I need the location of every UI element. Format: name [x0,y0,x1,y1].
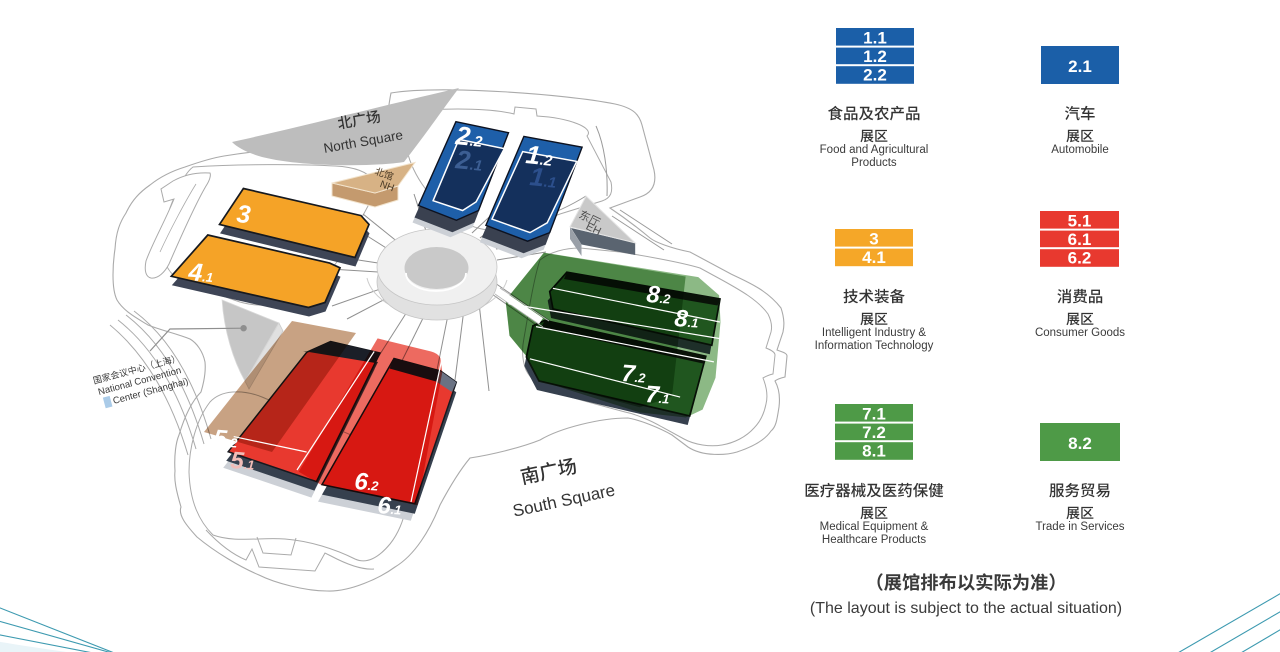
svg-text:Medical Equipment &: Medical Equipment & [820,521,929,533]
svg-text:Trade in Services: Trade in Services [1035,521,1124,533]
svg-text:Consumer Goods: Consumer Goods [1035,327,1125,339]
svg-text:Healthcare Products: Healthcare Products [822,534,926,546]
svg-text:1.2: 1.2 [863,47,887,66]
svg-text:3: 3 [235,200,251,229]
svg-text:3: 3 [869,230,878,249]
svg-text:6.1: 6.1 [1068,230,1092,249]
svg-text:6.2: 6.2 [1068,249,1092,268]
svg-text:(The layout is subject to the: (The layout is subject to the actual sit… [810,600,1122,617]
svg-text:7.2: 7.2 [862,423,886,442]
svg-text:7.1: 7.1 [862,405,886,424]
svg-text:8.1: 8.1 [862,442,886,461]
svg-text:8.2: 8.2 [1068,434,1092,453]
svg-text:2.2: 2.2 [863,66,887,85]
svg-text:2.1: 2.1 [1068,57,1092,76]
svg-text:Food and Agricultural: Food and Agricultural [820,144,929,156]
svg-text:Products: Products [851,157,897,169]
svg-text:1.1: 1.1 [863,29,887,48]
svg-text:5.1: 5.1 [1068,212,1092,231]
svg-text:4.1: 4.1 [862,248,886,267]
svg-text:Intelligent Industry &: Intelligent Industry & [822,327,927,339]
svg-text:Automobile: Automobile [1051,144,1109,156]
svg-text:Information Technology: Information Technology [815,340,934,352]
